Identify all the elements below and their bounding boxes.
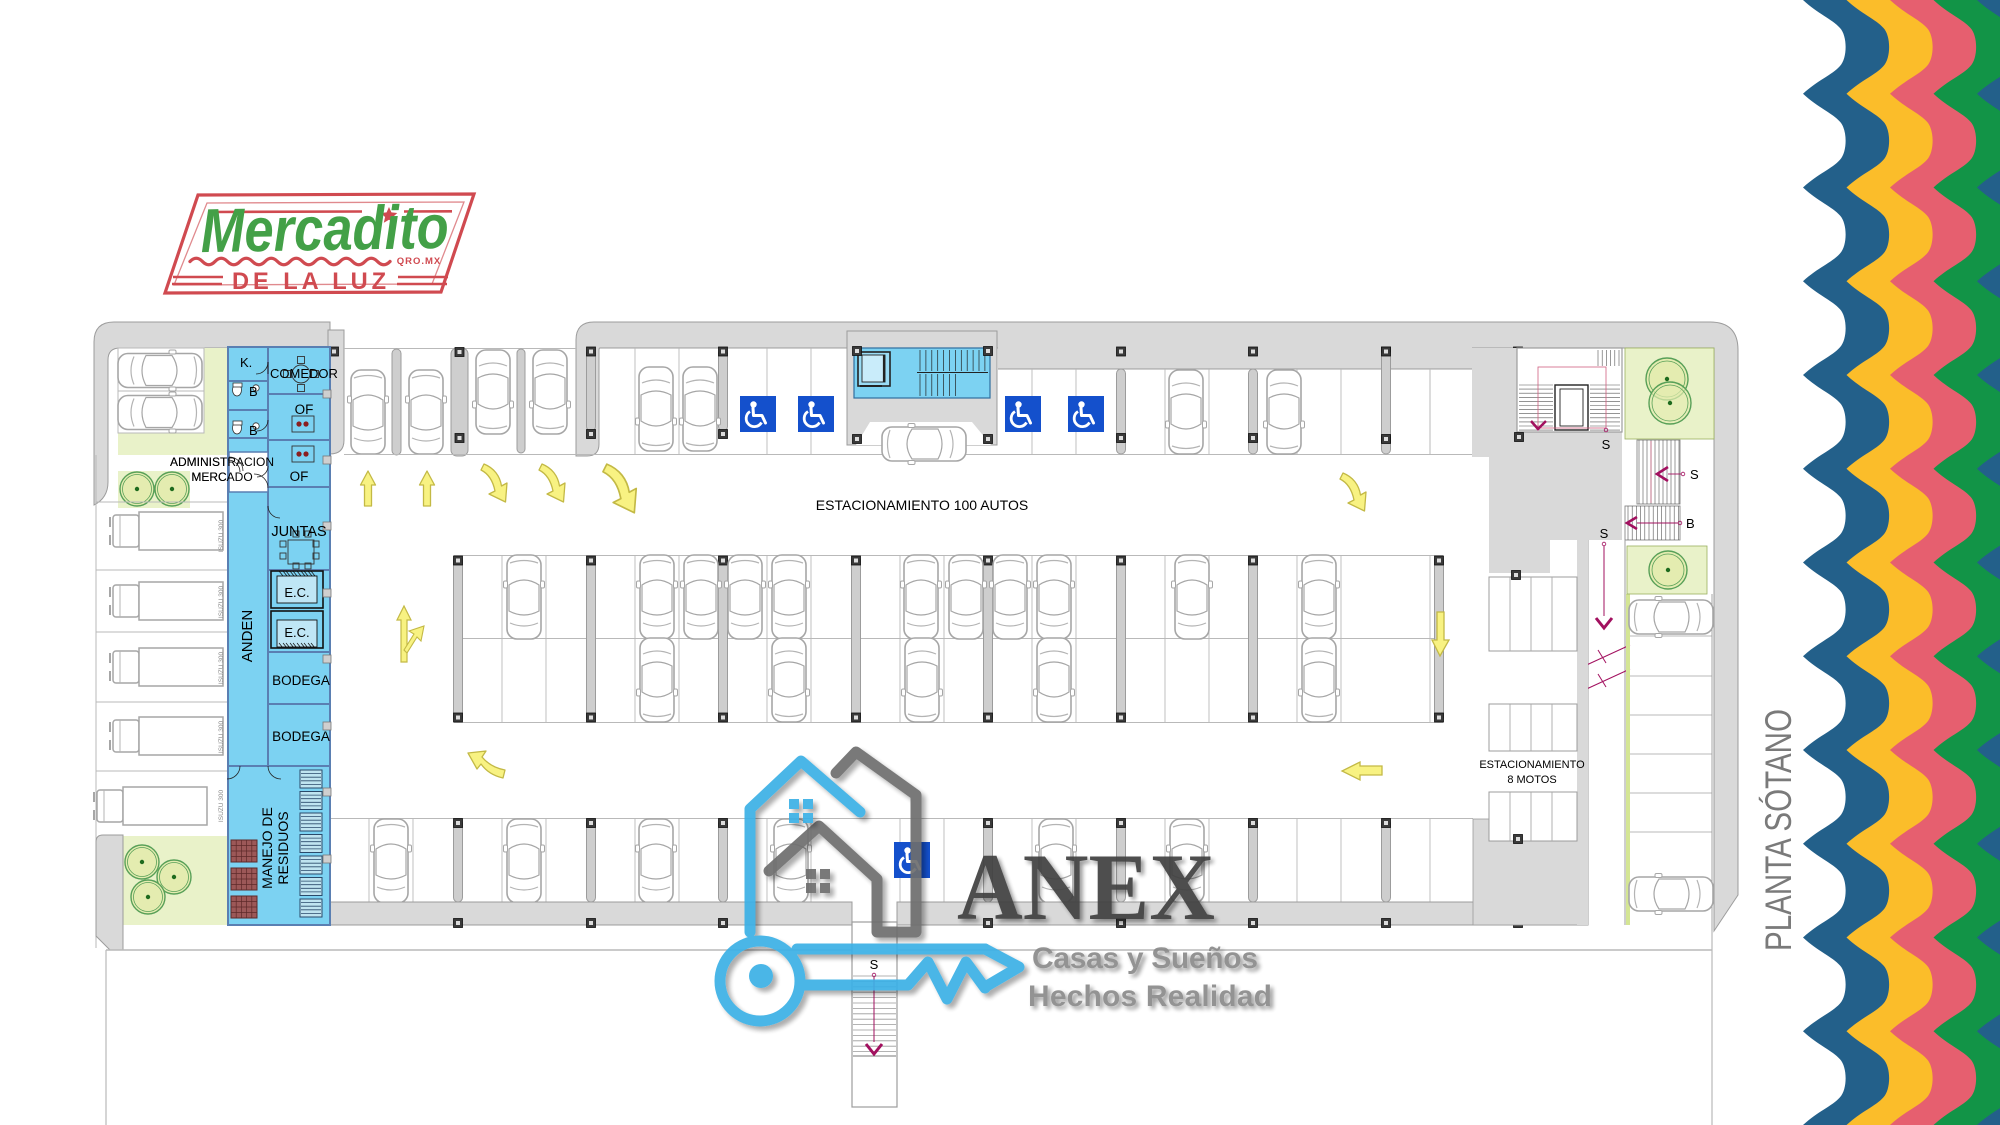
svg-text:ADMINISTRACION: ADMINISTRACION <box>170 455 274 469</box>
svg-text:ISUZU 300: ISUZU 300 <box>218 520 225 553</box>
svg-text:ISUZU 300: ISUZU 300 <box>218 721 225 754</box>
svg-text:ANDEN: ANDEN <box>239 610 256 663</box>
svg-text:B: B <box>1686 516 1695 531</box>
svg-text:E.C.: E.C. <box>284 625 309 640</box>
svg-text:ISUZU 300: ISUZU 300 <box>218 790 225 823</box>
svg-text:Hechos Realidad: Hechos Realidad <box>1028 980 1272 1013</box>
svg-text:ISUZU 300: ISUZU 300 <box>218 652 225 685</box>
svg-text:ANEX: ANEX <box>957 834 1215 940</box>
svg-text:BODEGA: BODEGA <box>272 673 330 688</box>
svg-text:8 MOTOS: 8 MOTOS <box>1507 774 1556 786</box>
svg-text:OF: OF <box>290 469 309 484</box>
svg-text:COMEDOR: COMEDOR <box>270 366 338 381</box>
svg-text:ESTACIONAMIENTO 100 AUTOS: ESTACIONAMIENTO 100 AUTOS <box>816 497 1028 513</box>
svg-text:PLANTA SÓTANO: PLANTA SÓTANO <box>1758 709 1799 951</box>
svg-text:S: S <box>1602 437 1611 452</box>
svg-text:MERCADO: MERCADO <box>191 470 252 484</box>
svg-text:E.C.: E.C. <box>284 585 309 600</box>
svg-text:B: B <box>249 384 258 399</box>
svg-text:S: S <box>870 957 879 972</box>
svg-text:MANEJO DE: MANEJO DE <box>259 807 275 889</box>
svg-text:B: B <box>249 423 258 438</box>
svg-text:QRO.MX: QRO.MX <box>397 256 442 267</box>
svg-text:ISUZU 300: ISUZU 300 <box>218 586 225 619</box>
svg-text:OF: OF <box>295 402 314 417</box>
svg-text:JUNTAS: JUNTAS <box>271 524 326 540</box>
svg-text:S: S <box>1690 467 1699 482</box>
svg-text:K.: K. <box>240 355 252 370</box>
svg-text:Casas y Sueños: Casas y Sueños <box>1032 942 1258 975</box>
svg-text:RESIDUOS: RESIDUOS <box>275 811 291 884</box>
svg-text:S: S <box>1600 526 1609 541</box>
svg-text:ESTACIONAMIENTO: ESTACIONAMIENTO <box>1479 759 1585 771</box>
svg-text:DE LA LUZ: DE LA LUZ <box>232 268 390 295</box>
svg-text:BODEGA: BODEGA <box>272 729 330 744</box>
